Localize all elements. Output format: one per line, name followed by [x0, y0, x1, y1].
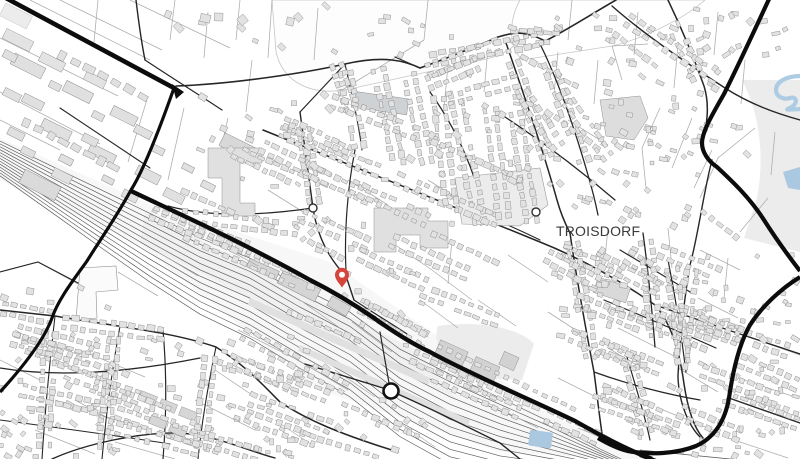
svg-text:TROISDORF: TROISDORF	[556, 223, 640, 239]
